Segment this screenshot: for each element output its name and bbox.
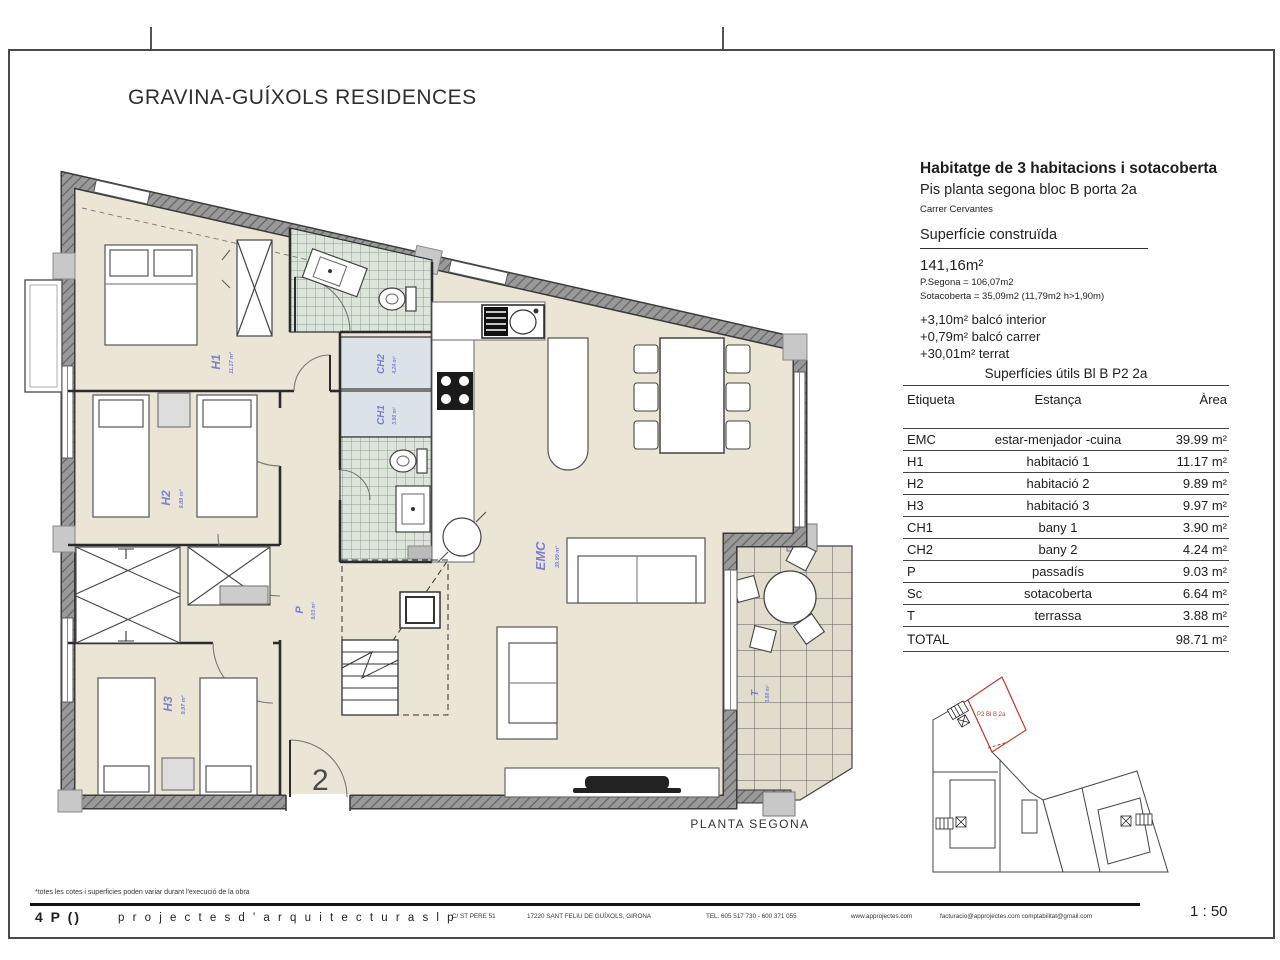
table-row: CH2bany 24.24 m² [903,538,1229,560]
label-h3: H3 [161,696,175,712]
label-h1: H1 [209,354,223,370]
dining-set [634,338,750,453]
top-tick-left [150,27,152,49]
svg-text:9.89 m²: 9.89 m² [178,489,185,508]
table-row: EMCestar-menjador -cuina39.99 m² [903,428,1229,450]
label-p: P [294,606,306,614]
svg-text:9.97 m²: 9.97 m² [180,695,187,714]
terrace-table [764,571,816,623]
areas-table-header: Etiqueta Estança Àrea [903,386,1229,412]
plan-caption: PLANTA SEGONA [690,817,809,831]
label-ch1: CH1 [376,405,387,425]
extra-balco-carrer: +0,79m² balcó carrer [920,329,1250,344]
left-balcony [25,280,62,392]
label-t: T [750,689,761,696]
label-h2: H2 [159,490,173,506]
footer-note: *totes les cotes i superficies poden var… [35,889,250,896]
built-psegona: P.Segona = 106,07m2 [920,277,1250,288]
firm-web: www.approjectes.com [851,913,912,920]
top-tick-right [722,27,724,49]
unit-subheading: Pis planta segona bloc B porta 2a [920,182,1250,198]
info-panel: Habitatge de 3 habitacions i sotacoberta… [920,160,1250,361]
page-title: GRAVINA-GUÍXOLS RESIDENCES [128,86,477,110]
svg-text:39.99 m²: 39.99 m² [554,546,561,568]
extra-terrat: +30,01m² terrat [920,346,1250,361]
built-surface-title: Superfície construïda [920,227,1148,249]
built-sotacoberta: Sotacoberta = 35,09m2 (11,79m2 h>1,90m) [920,291,1250,302]
table-row: H2habitació 29.89 m² [903,472,1229,494]
built-surface-total: 141,16m² [920,257,1250,274]
firm-name: p r o j e c t e s d ' a r q u i t e c t … [118,912,456,924]
unit-address: Carrer Cervantes [920,204,1250,215]
firm-address-city: 17220 SANT FELIU DE GUÍXOLS, GIRONA [527,913,651,920]
firm-emails: facturacio@approjectes.com comptabilitat… [940,913,1092,920]
firm-address-street: C/ ST PERE 51 [452,913,496,920]
svg-text:9.03 m²: 9.03 m² [311,602,317,620]
svg-text:4.24 m²: 4.24 m² [392,356,398,375]
table-row: CH1bany 13.90 m² [903,516,1229,538]
extra-balco-interior: +3,10m² balcó interior [920,312,1250,327]
svg-text:3.88 m²: 3.88 m² [765,685,771,703]
h1-bed [105,245,197,345]
floor-plan: H1 11.17 m² H2 9.89 m² H3 9.97 m² CH2 4.… [20,150,880,850]
svg-text:11.17 m²: 11.17 m² [228,352,235,374]
terrace [723,524,852,816]
areas-table: Superfícies útils Bl B P2 2a Etiqueta Es… [903,366,1229,652]
firm-phone: TEL. 605 517 730 - 600 371 055 [706,913,797,920]
site-plan: P2 Bl B 2a [915,655,1195,880]
kitchen-peninsula [548,338,588,470]
site-unit-label: P2 Bl B 2a [977,712,1006,718]
svg-text:3.90 m²: 3.90 m² [392,407,398,425]
table-total-row: TOTAL98.71 m² [903,626,1229,652]
label-ch2: CH2 [376,354,387,374]
label-emc: EMC [533,541,548,571]
table-row: Scsotacoberta6.64 m² [903,582,1229,604]
footer-rule [30,903,1140,906]
breakfast-table [443,518,481,556]
scale-label: 1 : 50 [1190,903,1228,920]
areas-table-title: Superfícies útils Bl B P2 2a [903,366,1229,386]
table-row: Ppassadís9.03 m² [903,560,1229,582]
table-row: H3habitació 39.97 m² [903,494,1229,516]
firm-logo: 4 P () [35,909,81,925]
unit-heading: Habitatge de 3 habitacions i sotacoberta [920,160,1250,178]
entrance-number: 2 [312,764,329,797]
table-row: Tterrassa3.88 m² [903,604,1229,626]
table-row: H1habitació 111.17 m² [903,450,1229,472]
